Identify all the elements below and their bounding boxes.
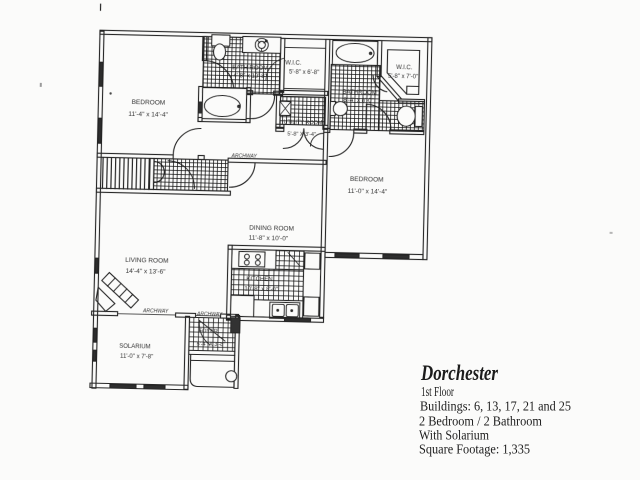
svg-text:UTILITY ROOM: UTILITY ROOM — [283, 119, 323, 126]
svg-text:FOYER: FOYER — [199, 329, 218, 335]
svg-text:4'-8" x 10'-8": 4'-8" x 10'-8" — [233, 73, 267, 80]
svg-text:W.I.C.: W.I.C. — [396, 65, 413, 71]
svg-text:5'-4" X 3'-8": 5'-4" X 3'-8" — [197, 341, 226, 348]
svg-text:KITCHEN: KITCHEN — [246, 277, 272, 284]
svg-text:DINING ROOM: DINING ROOM — [249, 225, 294, 233]
svg-text:2 Bedroom / 2 Bathroom: 2 Bedroom / 2 Bathroom — [419, 414, 542, 429]
svg-text:11'-8" x 10'-0": 11'-8" x 10'-0" — [249, 235, 289, 243]
svg-text:Buildings: 6, 13, 17, 21 and: Buildings: 6, 13, 17, 21 and 25 — [420, 399, 571, 414]
svg-text:5'-8" x 6'-8": 5'-8" x 6'-8" — [289, 70, 319, 77]
svg-text:BEDROOM: BEDROOM — [350, 176, 384, 184]
svg-text:LIVING ROOM: LIVING ROOM — [125, 257, 168, 265]
svg-text:ARCHWAY: ARCHWAY — [231, 153, 258, 160]
svg-text:BATH ROOM: BATH ROOM — [232, 65, 268, 72]
svg-text:BATHROOM: BATHROOM — [342, 90, 376, 97]
svg-text:10'-8" x 8'-0": 10'-8" x 8'-0" — [244, 287, 278, 294]
svg-text:Dorchester: Dorchester — [420, 360, 498, 385]
svg-text:With Solarium: With Solarium — [419, 428, 489, 443]
svg-text:5'-8" x 7'-0": 5'-8" x 7'-0" — [388, 74, 418, 81]
svg-text:11'-0" x 14'-4": 11'-0" x 14'-4" — [348, 188, 388, 196]
svg-text:ARCHWAY: ARCHWAY — [142, 308, 169, 315]
svg-text:BEDROOM: BEDROOM — [132, 99, 166, 107]
svg-text:W.I.C.: W.I.C. — [285, 60, 302, 66]
svg-text:ARCHWAY: ARCHWAY — [196, 311, 223, 318]
svg-text:5'-8" X 3'-4": 5'-8" X 3'-4" — [287, 131, 316, 138]
svg-text:8'-4" x 8'-0": 8'-4" x 8'-0" — [343, 98, 373, 105]
svg-text:SOLARIUM: SOLARIUM — [119, 344, 150, 351]
svg-text:11'-4" x 14'-4": 11'-4" x 14'-4" — [128, 111, 168, 119]
svg-text:14'-4" x 13'-6": 14'-4" x 13'-6" — [126, 268, 167, 276]
svg-text:Square Footage: 1,335: Square Footage: 1,335 — [419, 442, 530, 457]
svg-text:1st Floor: 1st Floor — [421, 384, 454, 399]
svg-text:11'-0" x 7'-8": 11'-0" x 7'-8" — [120, 354, 153, 361]
